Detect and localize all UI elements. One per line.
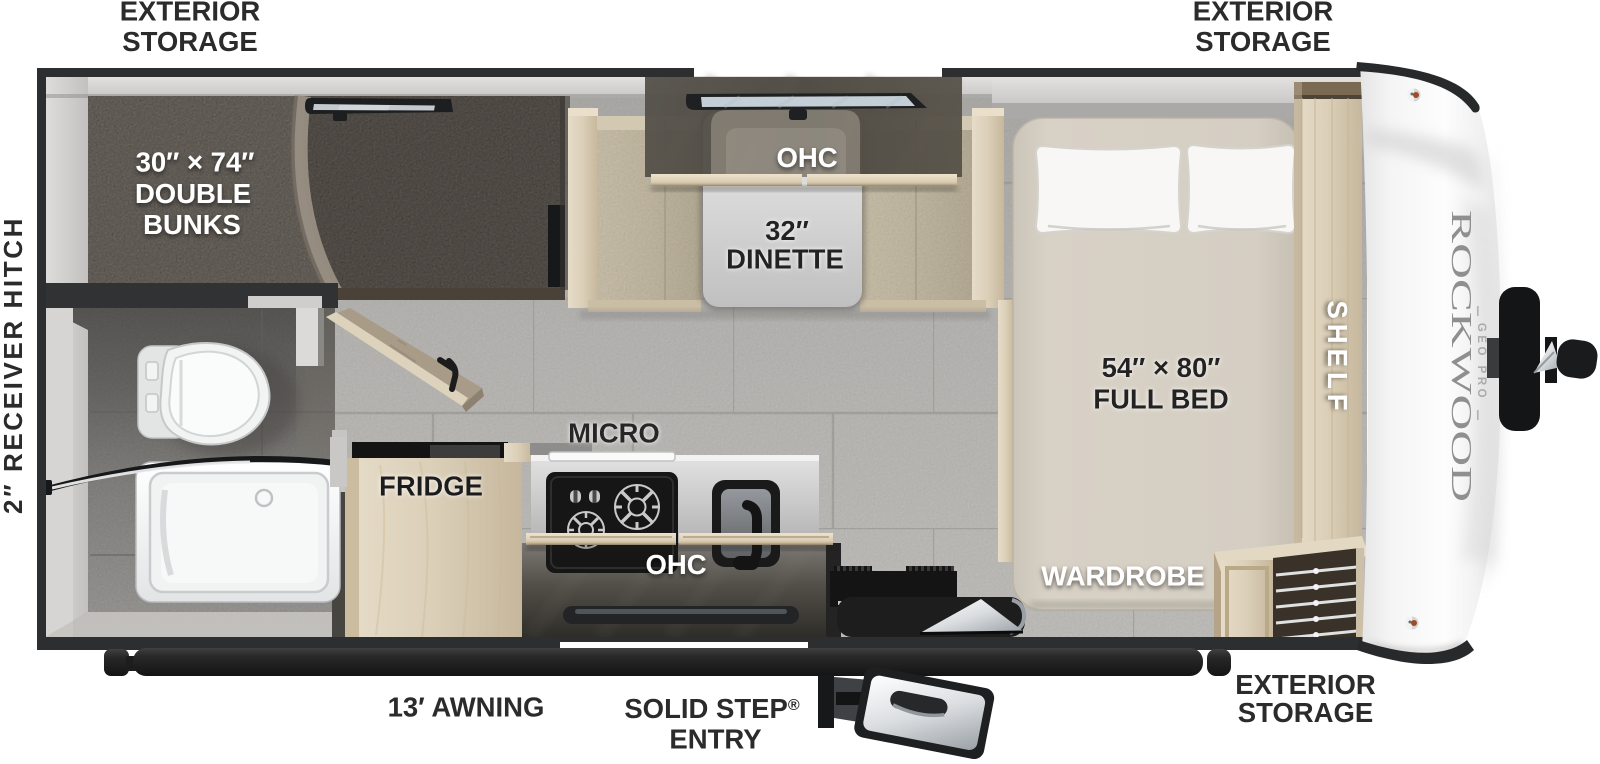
- svg-text:OHC: OHC: [645, 549, 706, 580]
- svg-text:2″ RECEIVER HITCH: 2″ RECEIVER HITCH: [0, 216, 28, 514]
- svg-text:ENTRY: ENTRY: [669, 724, 761, 755]
- svg-text:32″: 32″: [765, 215, 809, 246]
- svg-text:EXTERIOR: EXTERIOR: [1235, 669, 1376, 700]
- svg-text:ROCKWOOD: ROCKWOOD: [1445, 210, 1476, 502]
- svg-text:WARDROBE: WARDROBE: [1041, 561, 1204, 592]
- svg-text:FRIDGE: FRIDGE: [379, 471, 483, 502]
- svg-text:BUNKS: BUNKS: [143, 209, 241, 240]
- svg-text:OHC: OHC: [776, 142, 837, 173]
- svg-text:STORAGE: STORAGE: [1238, 697, 1374, 728]
- svg-text:SOLID STEP®: SOLID STEP®: [624, 693, 800, 724]
- svg-text:13′ AWNING: 13′ AWNING: [388, 692, 545, 723]
- svg-text:STORAGE: STORAGE: [122, 26, 258, 57]
- svg-text:SHELF: SHELF: [1322, 300, 1353, 415]
- svg-text:DINETTE: DINETTE: [726, 244, 844, 275]
- svg-text:FULL BED: FULL BED: [1093, 384, 1228, 415]
- svg-text:DOUBLE: DOUBLE: [135, 178, 251, 209]
- svg-text:STORAGE: STORAGE: [1195, 26, 1331, 57]
- svg-text:54″ × 80″: 54″ × 80″: [1102, 352, 1221, 383]
- svg-text:EXTERIOR: EXTERIOR: [120, 0, 261, 27]
- svg-text:MICRO: MICRO: [568, 418, 660, 449]
- svg-text:GEO PRO: GEO PRO: [1475, 323, 1487, 401]
- svg-text:EXTERIOR: EXTERIOR: [1193, 0, 1334, 27]
- svg-text:30″ × 74″: 30″ × 74″: [136, 147, 255, 178]
